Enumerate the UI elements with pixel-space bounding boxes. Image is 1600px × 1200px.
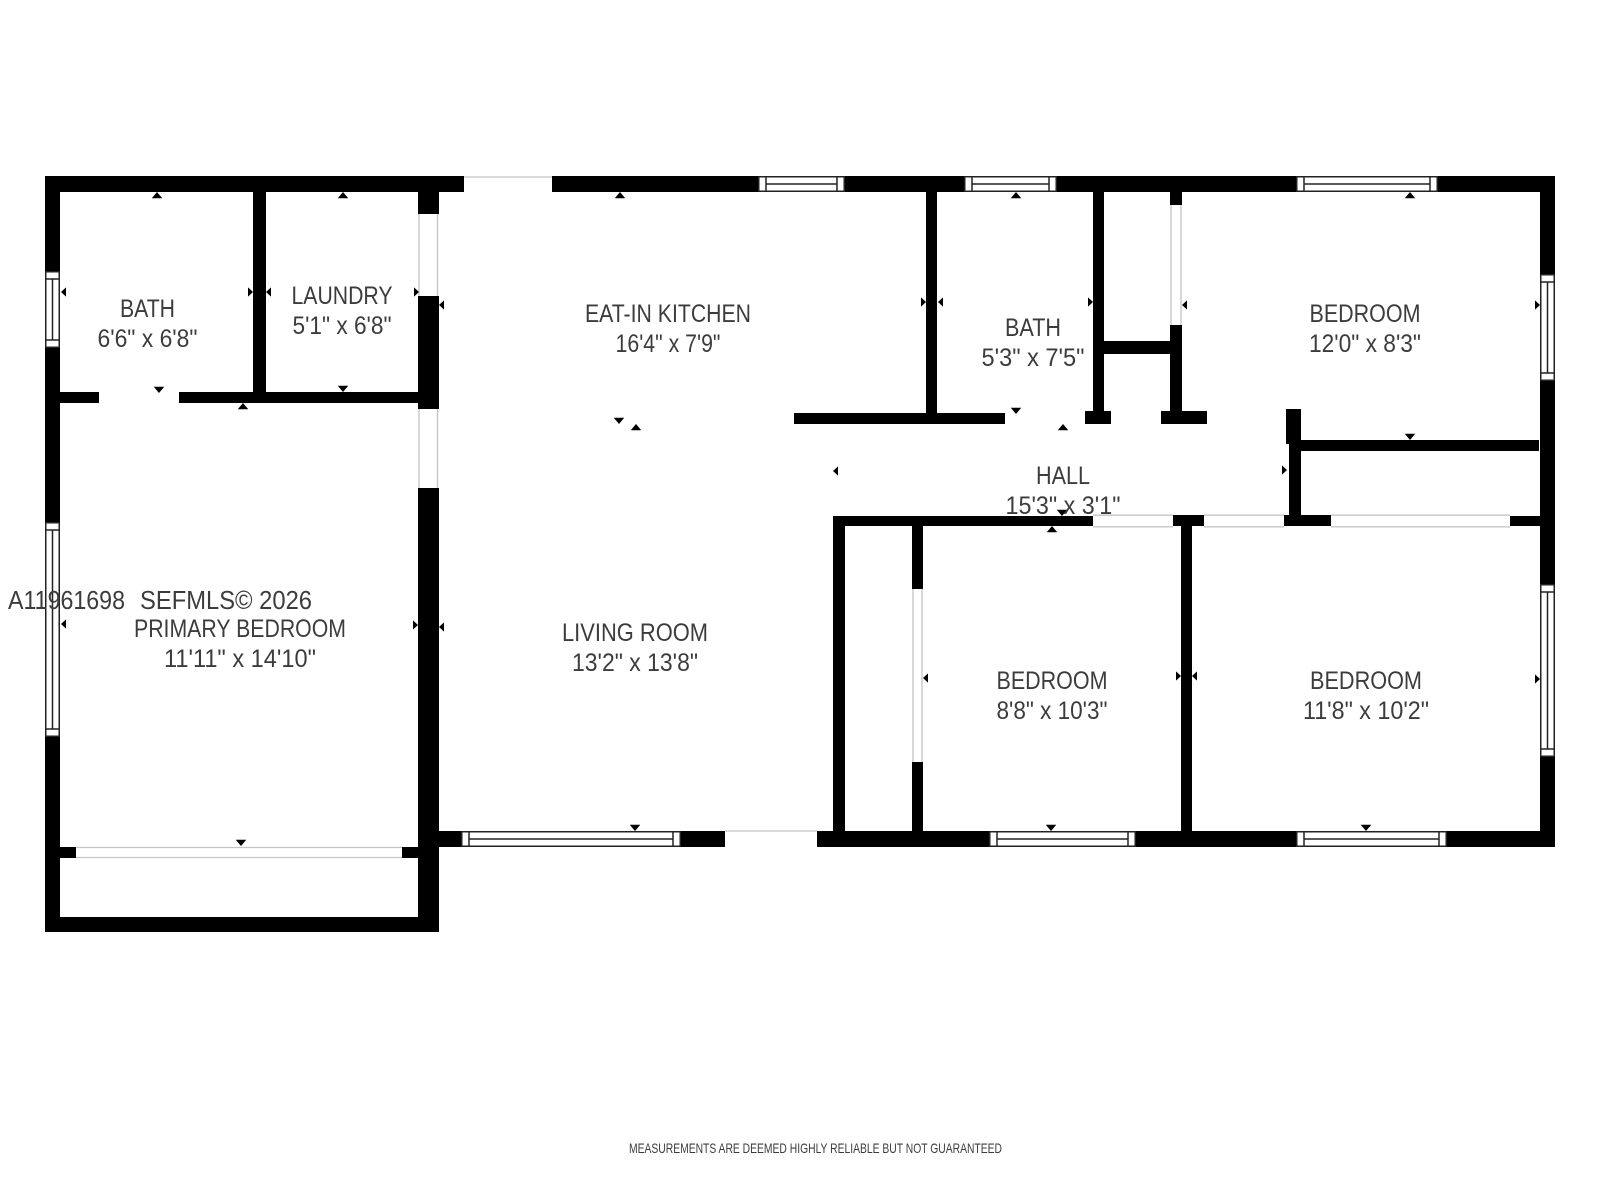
svg-text:13'2" x 13'8": 13'2" x 13'8" [572,649,698,677]
svg-text:12'0" x 8'3": 12'0" x 8'3" [1309,330,1421,358]
svg-text:16'4" x 7'9": 16'4" x 7'9" [616,330,721,358]
svg-text:A11961698: A11961698 [8,585,125,615]
svg-text:8'8" x 10'3": 8'8" x 10'3" [997,697,1108,725]
svg-text:BATH: BATH [120,295,175,323]
svg-text:PRIMARY BEDROOM: PRIMARY BEDROOM [134,615,346,643]
svg-text:5'3" x 7'5": 5'3" x 7'5" [982,344,1085,372]
svg-text:SEFMLS© 2026: SEFMLS© 2026 [140,585,312,615]
svg-text:LAUNDRY: LAUNDRY [292,282,393,310]
svg-text:5'1" x 6'8": 5'1" x 6'8" [293,312,392,340]
svg-text:BEDROOM: BEDROOM [1310,300,1421,328]
svg-text:11'11" x 14'10": 11'11" x 14'10" [164,645,316,673]
svg-text:BEDROOM: BEDROOM [997,667,1108,695]
svg-text:LIVING ROOM: LIVING ROOM [562,619,708,647]
svg-text:6'6" x 6'8": 6'6" x 6'8" [98,325,198,353]
svg-text:HALL: HALL [1036,462,1090,490]
svg-text:11'8" x 10'2": 11'8" x 10'2" [1303,697,1429,725]
svg-text:BATH: BATH [1005,314,1061,342]
svg-text:EAT-IN KITCHEN: EAT-IN KITCHEN [585,300,751,328]
svg-text:15'3" x 3'1": 15'3" x 3'1" [1006,492,1121,520]
svg-text:BEDROOM: BEDROOM [1310,667,1422,695]
svg-text:MEASUREMENTS ARE DEEMED HIGHLY: MEASUREMENTS ARE DEEMED HIGHLY RELIABLE … [629,1140,1002,1156]
